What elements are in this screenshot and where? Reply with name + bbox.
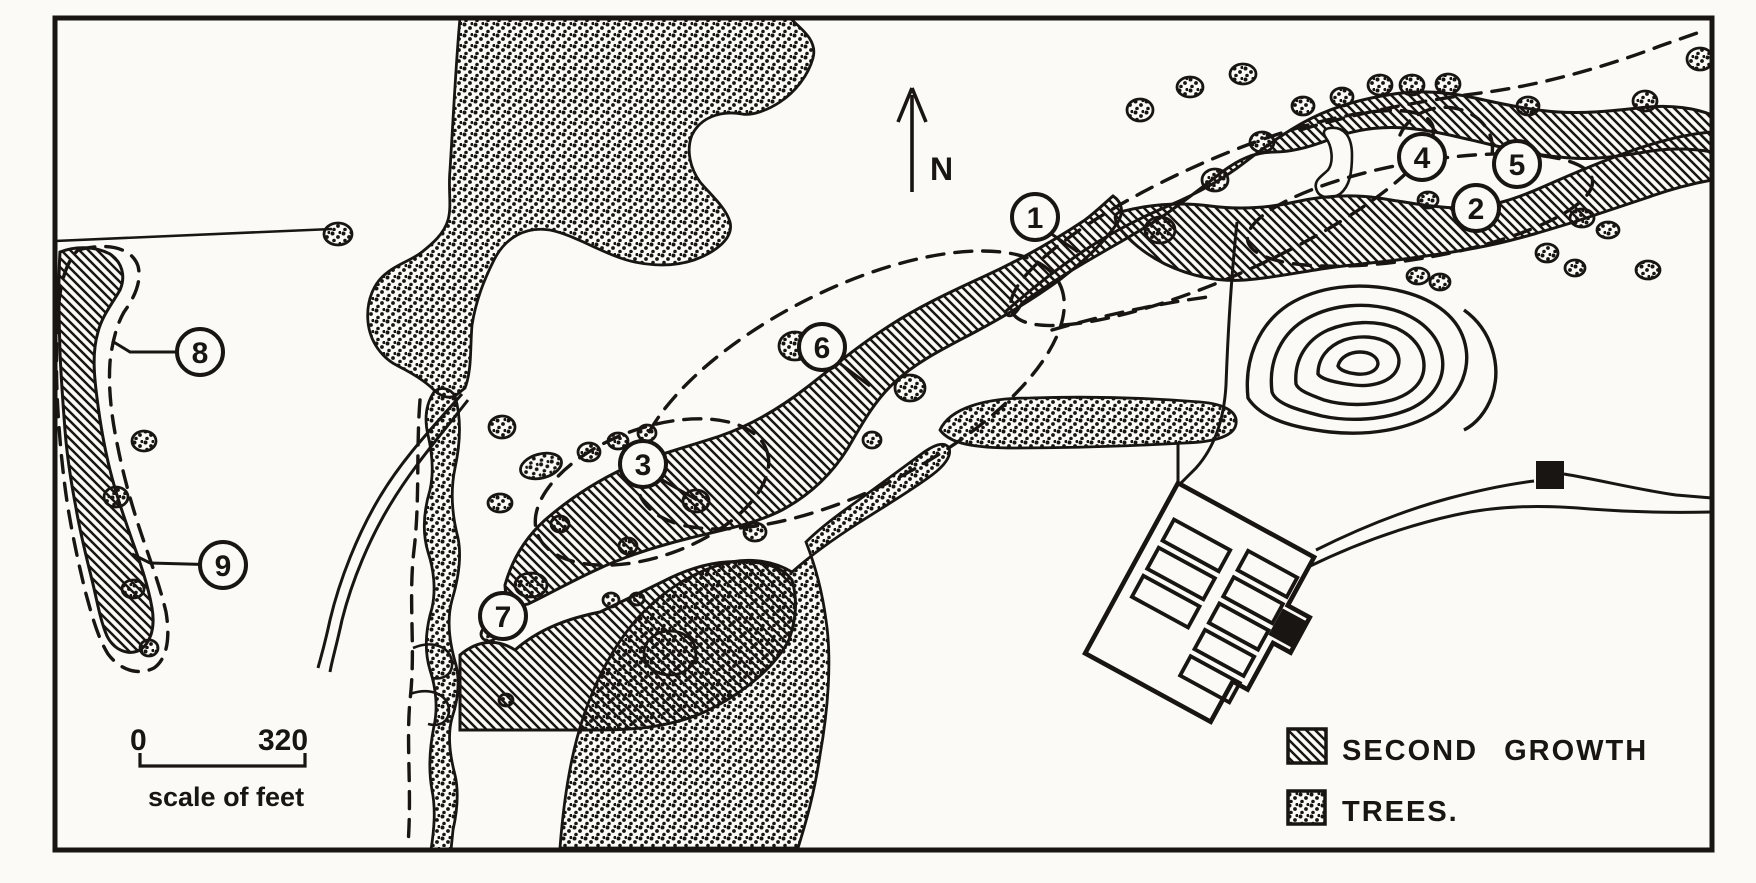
tree-blob bbox=[324, 223, 352, 245]
legend-swatch-second-growth bbox=[1288, 729, 1326, 763]
plot-marker-label-9: 9 bbox=[215, 550, 232, 583]
plot-marker-label-7: 7 bbox=[495, 601, 512, 634]
map-canvas: 123456789 N 0 320 scale of feet SECOND G… bbox=[0, 0, 1756, 883]
legend-label-trees: TREES. bbox=[1342, 796, 1459, 828]
plot-marker-label-3: 3 bbox=[635, 449, 652, 482]
scale-caption: scale of feet bbox=[148, 782, 304, 812]
plot-marker-label-4: 4 bbox=[1414, 142, 1431, 175]
plot-marker-label-1: 1 bbox=[1027, 202, 1044, 235]
legend-swatch-trees bbox=[1288, 791, 1325, 824]
plot-marker-label-6: 6 bbox=[814, 332, 831, 365]
plot-marker-label-2: 2 bbox=[1468, 193, 1485, 226]
plot-marker-label-8: 8 bbox=[192, 337, 209, 370]
scale-end-label: 320 bbox=[258, 724, 308, 757]
legend-label-second-growth: SECOND GROWTH bbox=[1342, 735, 1648, 767]
plot-marker-label-5: 5 bbox=[1509, 149, 1526, 182]
north-label: N bbox=[930, 151, 953, 187]
scale-start-label: 0 bbox=[130, 724, 147, 757]
scanned-survey-map: 123456789 N 0 320 scale of feet SECOND G… bbox=[0, 0, 1756, 883]
hut-square bbox=[1536, 461, 1564, 489]
